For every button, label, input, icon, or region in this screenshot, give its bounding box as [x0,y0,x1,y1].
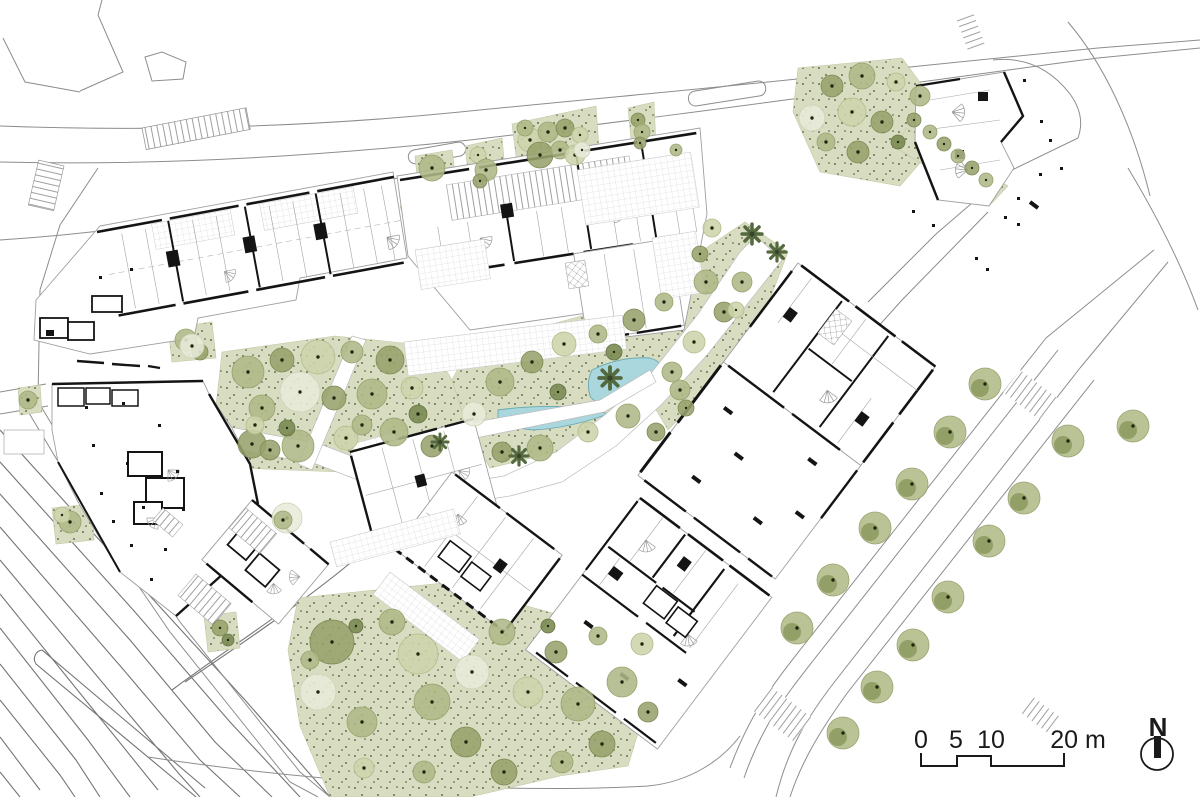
tree [634,137,646,149]
site-plan: 0 5 10 20 m N [0,0,1200,797]
tree [703,219,721,237]
scale-bar-line [921,753,1064,766]
crosswalk [1003,370,1060,422]
tree [521,351,543,373]
tree [180,334,204,358]
sidewalk-bay [687,80,766,107]
crosswalk [752,686,812,741]
tree [352,415,372,435]
street-tree [781,612,813,644]
tree [574,142,590,158]
tree [550,384,566,400]
tree [451,727,481,757]
tree [799,105,825,131]
tree [413,761,435,783]
street-tree [897,629,929,661]
tree [491,759,517,785]
tree [607,667,637,697]
tree [401,377,423,399]
tree [623,309,645,331]
street-tree [969,368,1001,400]
tree [694,270,718,294]
tree [923,125,937,139]
tree [473,174,487,188]
palm-tree-icon [768,243,786,261]
tree [279,420,295,436]
small-structure [4,430,44,454]
tree [419,155,445,181]
tree [662,362,682,382]
scale-tick-label: 0 [914,726,928,754]
road-east-curve [1068,22,1150,196]
tree [260,440,280,460]
tree [589,731,615,757]
tree [683,331,705,353]
tree [670,380,690,400]
parcel-pentagon [145,52,186,81]
tree [527,435,553,461]
tree [891,135,905,149]
street-tree [934,416,966,448]
tree [322,386,346,410]
tree [538,122,558,142]
tree [937,137,951,151]
tree [455,655,489,689]
tree [349,619,363,633]
tree [414,684,450,720]
tree [589,627,607,645]
tree [301,651,319,669]
scale-tick-label: 5 [949,726,963,754]
palm-tree-icon [742,224,762,244]
tree [354,758,374,778]
tree [376,346,404,374]
tree [572,127,588,143]
tree [222,634,234,646]
crosswalk [142,108,250,150]
street-tree [1052,425,1084,457]
tree [887,73,905,91]
tree [280,372,320,412]
parcel-line [3,38,80,92]
tree [489,619,515,645]
tree [732,272,752,292]
tree [552,332,576,356]
scale-bar: 0 5 10 20 m [914,726,1106,766]
tree [965,161,979,175]
tree [551,751,573,773]
tree [849,63,875,89]
street-tree [1008,482,1040,514]
tree [871,111,893,133]
site-plan-canvas: 0 5 10 20 m N [0,0,1200,797]
tree [300,674,336,710]
tree [517,120,533,136]
palm-tree-icon [510,447,528,465]
tree [380,418,408,446]
tree [655,293,673,311]
tree [951,149,965,163]
tree [606,344,622,360]
crosswalk [956,12,986,54]
tree [821,75,843,97]
tree [541,619,555,633]
palm-tree-icon [599,367,621,389]
tree [545,641,567,663]
tree [979,173,993,187]
tree [301,340,335,374]
tree [678,400,694,416]
tree [561,687,595,721]
tree [246,416,264,434]
street-tree [1117,410,1149,442]
tree [486,368,514,396]
crosswalk [28,160,64,211]
tree [638,702,658,722]
street-tree [973,525,1005,557]
tree [19,391,37,409]
tree [631,633,653,655]
tree [379,609,405,635]
tree [728,302,744,318]
street-tree [817,564,849,596]
tree [647,423,665,441]
palm-tree-icon [432,434,448,450]
tree [527,142,553,168]
tree [847,141,869,163]
north-arrow: N [1141,712,1173,770]
tree [589,325,607,343]
tree [270,348,294,372]
tree [838,98,866,126]
tree [54,507,70,523]
tree [907,113,921,127]
tree [692,246,708,262]
tree [578,422,598,442]
tree [341,341,363,363]
tree [492,442,512,462]
tree [670,144,682,156]
tree [556,119,574,137]
tree [357,379,387,409]
street-tree [861,671,893,703]
tree [212,620,228,636]
scale-tick-label: 20 m [1050,726,1106,754]
tree [513,677,543,707]
tree [274,511,292,529]
tree [910,86,930,106]
building-pavilion-northeast [912,72,1063,271]
north-needle [1154,736,1161,758]
tree [462,402,486,426]
tree [817,133,835,151]
tree [616,404,640,428]
street-tree [859,512,891,544]
street-tree [932,581,964,613]
street-tree [827,717,859,749]
tree [398,634,438,674]
tree [409,405,427,423]
tree [232,356,264,388]
street-tree [896,468,928,500]
tree [347,707,377,737]
scale-tick-label: 10 [977,726,1005,754]
